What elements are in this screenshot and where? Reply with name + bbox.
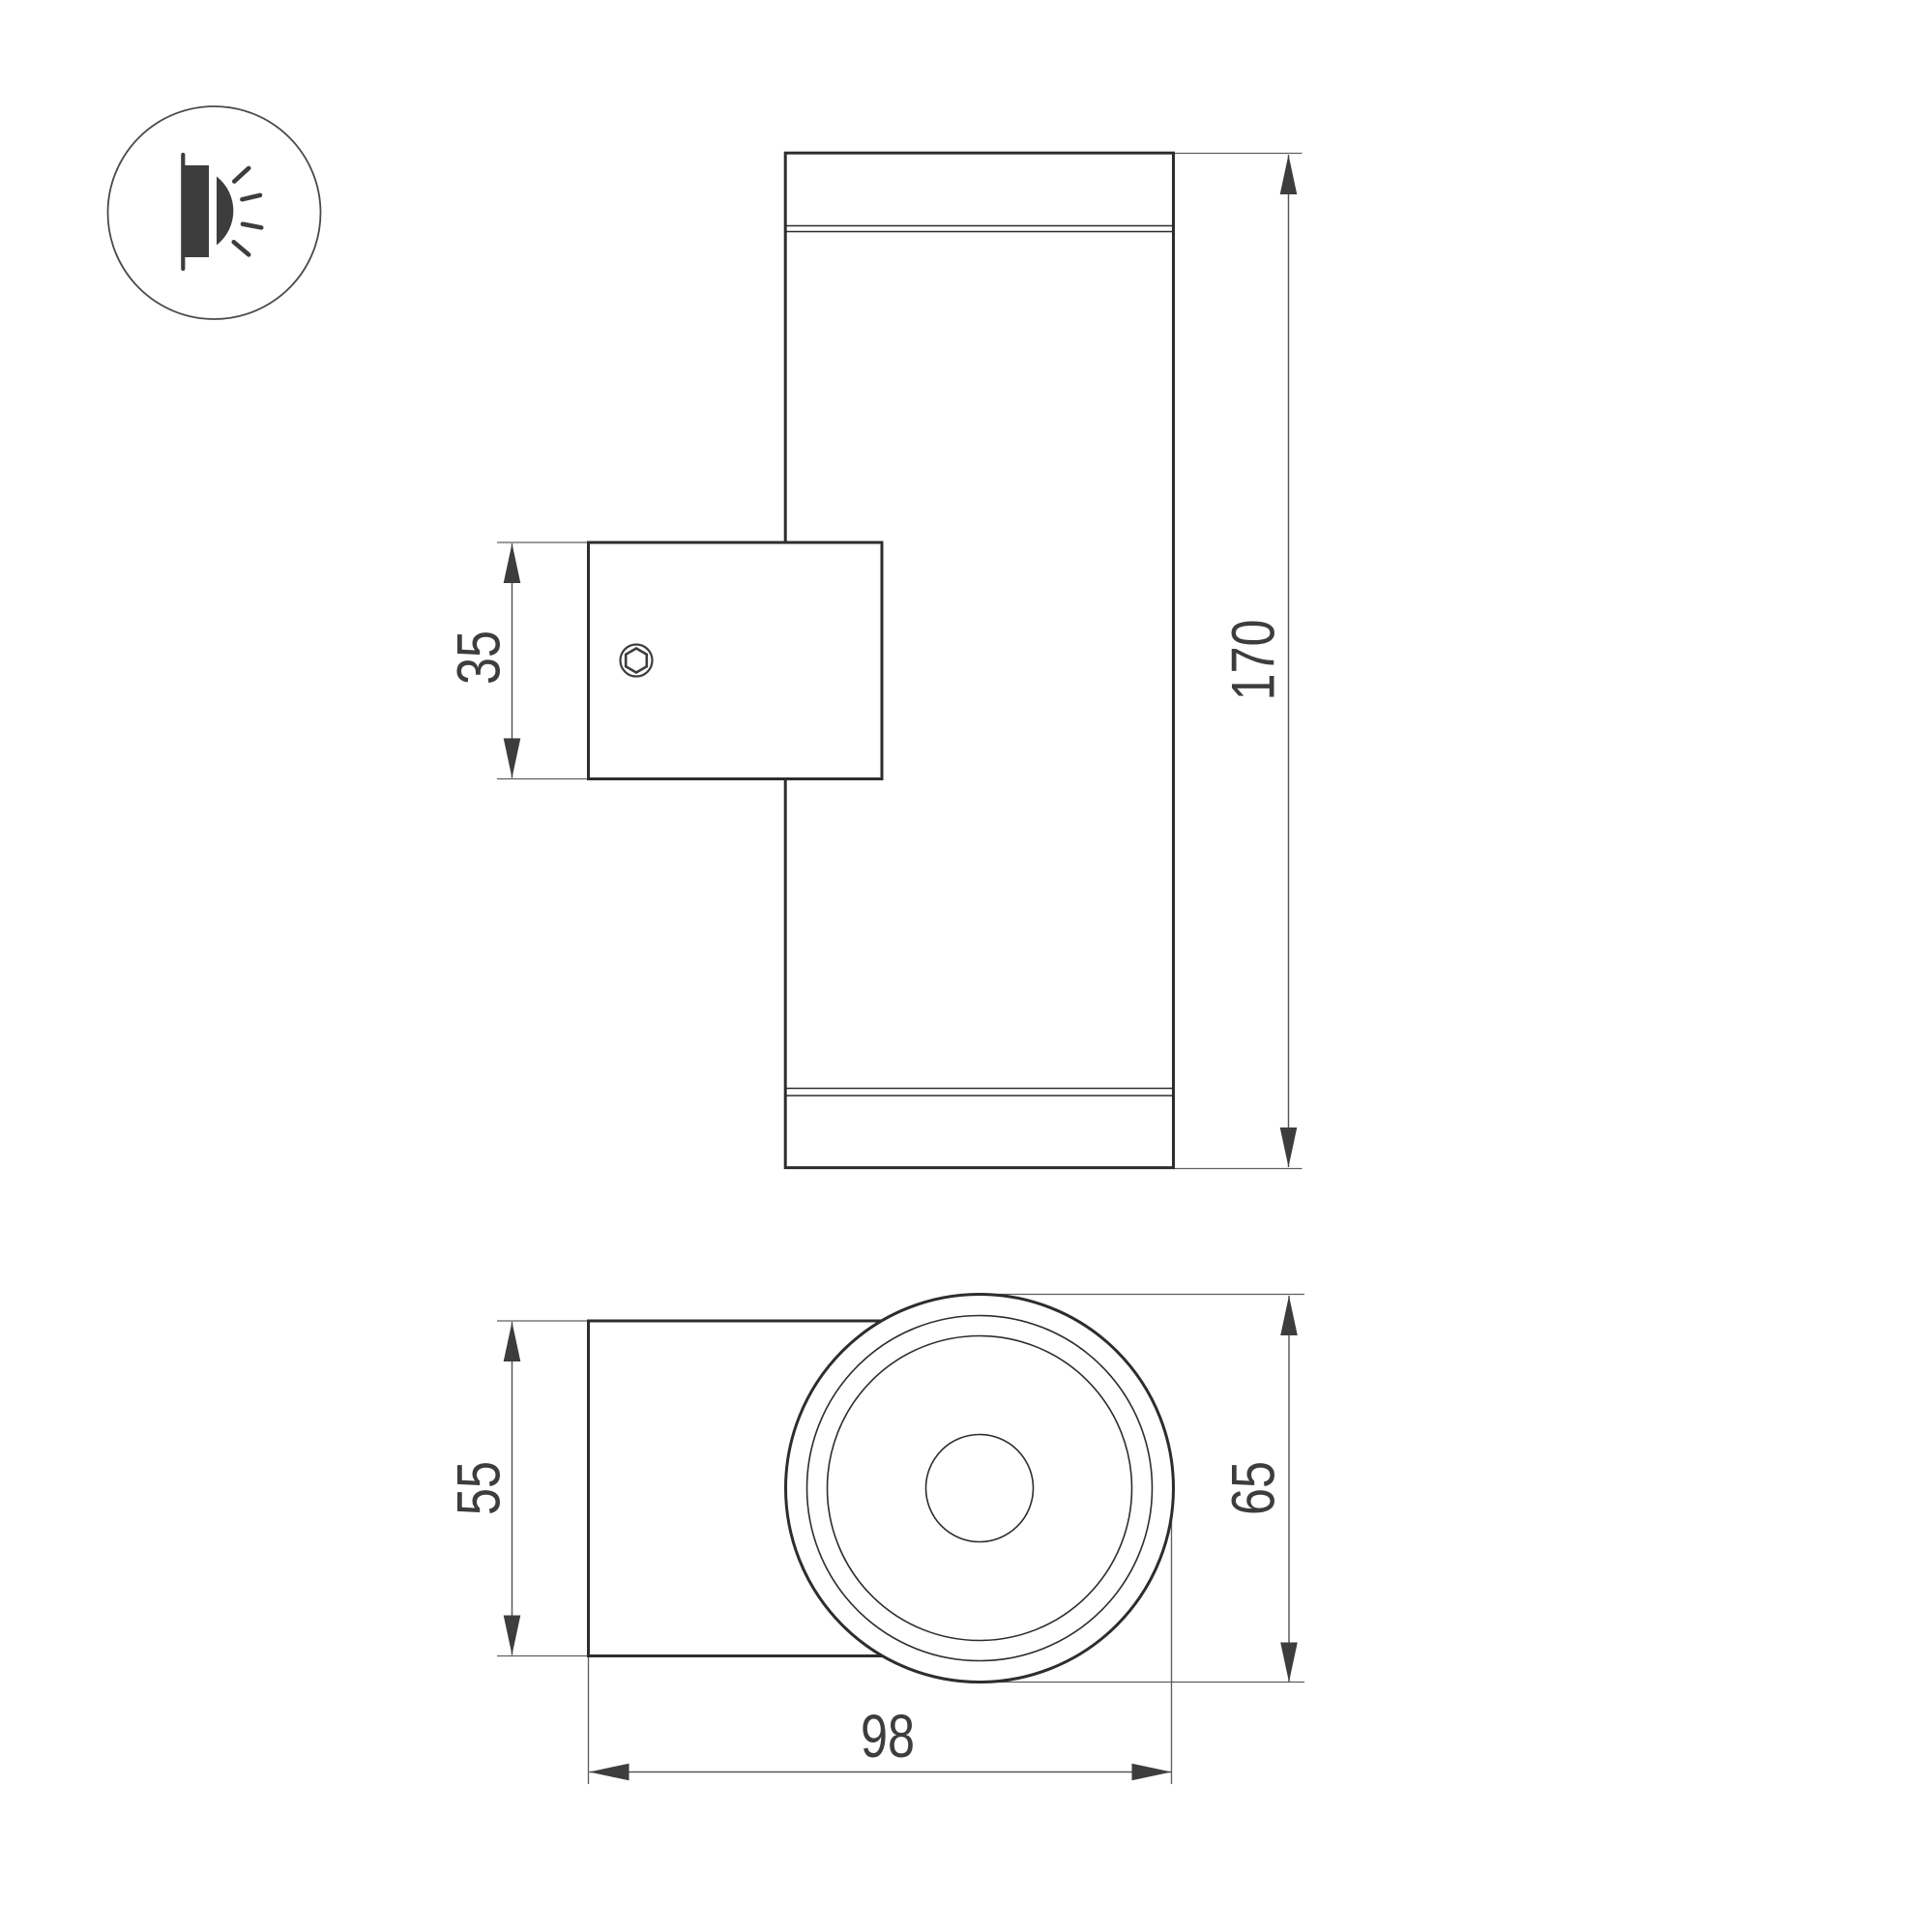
svg-text:170: 170 — [1219, 619, 1288, 700]
svg-text:55: 55 — [445, 1461, 513, 1515]
svg-text:35: 35 — [445, 630, 513, 685]
svg-text:98: 98 — [861, 1703, 915, 1771]
svg-text:65: 65 — [1219, 1461, 1288, 1515]
